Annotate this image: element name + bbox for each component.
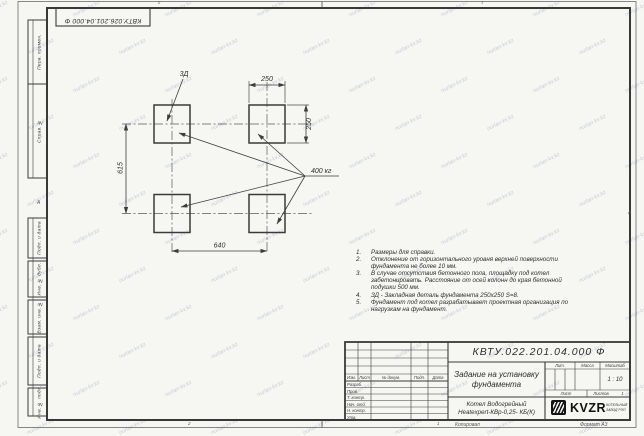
sheets-label: Листов [587, 390, 615, 397]
dim-bottom-640: 640 [214, 243, 226, 250]
drawing-title-line1: Задание на установку [454, 370, 539, 380]
note-item: 1.Размеры для справки. [352, 249, 640, 256]
product-name-line1: Котел Водогрейный [467, 401, 527, 409]
zone-num-bottom-left: 2 [188, 421, 190, 426]
zone-letter-right: А [628, 210, 631, 216]
margin-box-label: Перв. примен. [38, 34, 43, 70]
tb-sign-row-label: Утв. [347, 415, 357, 420]
dim-top-250: 250 [260, 76, 273, 83]
margin-box-label: Подп. и дата [38, 221, 43, 255]
margin-box-label: Справ. № [38, 119, 43, 143]
note-item: 3.В случае отсутствия бетонного пола, пл… [352, 270, 640, 291]
technical-notes: 1.Размеры для справки.2.Отклонение от го… [352, 249, 640, 313]
kvzr-logo-icon [551, 400, 566, 415]
note-number: 5. [352, 299, 371, 313]
tb-header-col: № докум. [371, 374, 411, 381]
sheets-value: 1 [615, 390, 630, 397]
zone-num-bottom-right: 1 [437, 421, 439, 426]
tb-sign-row-label: Пров. [347, 389, 358, 394]
note-text: Фундамент под котел разрабатывает проект… [371, 299, 575, 313]
dim-right-250: 250 [306, 118, 313, 131]
tb-header-col: Лист [358, 374, 371, 381]
tb-sign-row-label: Н. контр. [347, 408, 366, 413]
note-text: В случае отсутствия бетонного пола, площ… [371, 270, 575, 291]
note-text: Размеры для справки. [371, 249, 575, 256]
doc-number: КВТУ.022.201.04.000 Ф [448, 342, 630, 362]
margin-box-label: Подп. и дата [38, 344, 43, 378]
lit-header: Лит. [545, 362, 575, 369]
note-text: Отклонение от горизонтального уровня вер… [371, 256, 575, 270]
product-name-line2: Heatexpert-КВр-0,25- КБ(К) [458, 409, 535, 417]
note-number: 3. [352, 270, 371, 291]
note-item: 5.Фундамент под котел разрабатывает прое… [352, 299, 640, 313]
note-item: 4.ЗД - Закладная деталь фундамента 250х2… [352, 292, 640, 299]
drawing-title-line2: фундамента [472, 380, 521, 390]
margin-box-label: Инв. № подл. [38, 385, 43, 418]
scale-header: Масштаб [600, 362, 630, 369]
note-item: 2.Отклонение от горизонтального уровня в… [352, 256, 640, 270]
logo-stripes [553, 402, 564, 413]
scale-value: 1 : 10 [600, 369, 630, 390]
embed-label: 3Д [180, 71, 189, 78]
drawing-title: Задание на установку фундамента [448, 362, 545, 397]
logo-sub-line1: КОТЕЛЬНЫЙ [606, 403, 627, 407]
drawing-sheet-scan: { "stamp_top": "КВТУ.026.201.04.000 Ф", … [0, 0, 644, 430]
margin-box-label: Инв. № дубл. [38, 263, 43, 296]
mass-header: Масса [575, 362, 600, 369]
tb-header-col: Дата [428, 374, 448, 381]
note-number: 2. [352, 256, 371, 270]
foundation-plan: 250 250 615 640 3Д 400 кг [118, 71, 340, 253]
note-number: 4. [352, 292, 371, 299]
zone-num-top-right: 1 [481, 0, 483, 5]
note-number: 1. [352, 249, 371, 256]
dim-left-615: 615 [118, 162, 125, 174]
tb-sign-row-label: Нач. отд. [347, 402, 366, 407]
format-label: Формат А3 [580, 422, 607, 428]
kvzr-logo-text: KVZR [570, 401, 606, 415]
tb-header-col: Подп. [411, 374, 428, 381]
logo-sub-line2: ЗАВОД РЭП [606, 408, 625, 412]
load-label: 400 кг [311, 168, 332, 175]
zone-num-top-left: 2 [158, 0, 160, 5]
top-stamp-text: КВТУ.026.201.04.000 Ф [58, 10, 148, 24]
copied-label: Копировал [455, 422, 480, 428]
zone-letter-left: А [37, 200, 40, 206]
product-name: Котел Водогрейный Heatexpert-КВр-0,25- К… [448, 397, 545, 420]
sheet-label: Лист [545, 390, 587, 397]
tb-header-col: Изм. [345, 374, 358, 381]
note-text: ЗД - Закладная деталь фундамента 250х250… [371, 292, 575, 299]
tb-sign-row-label: Т. контр. [347, 395, 365, 400]
margin-box-label: Взам. инв. № [38, 300, 43, 333]
tb-sign-row-label: Разраб. [347, 382, 362, 387]
